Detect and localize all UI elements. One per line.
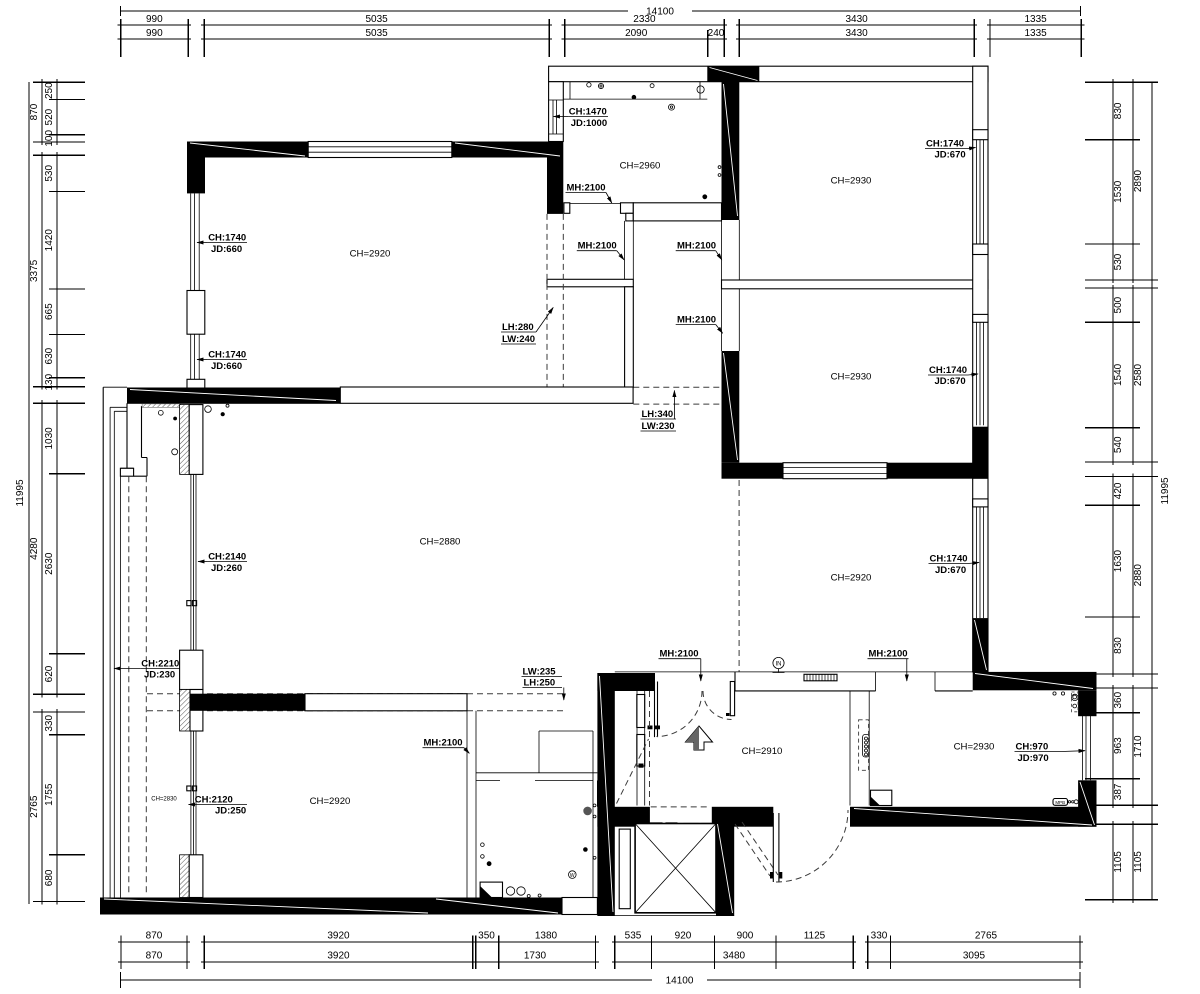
svg-text:5035: 5035 (365, 28, 388, 39)
svg-text:1105: 1105 (1133, 851, 1144, 873)
svg-text:360: 360 (1113, 691, 1124, 708)
svg-text:CH:2210: CH:2210 (141, 659, 179, 670)
svg-text:1540: 1540 (1113, 363, 1124, 386)
svg-text:5035: 5035 (365, 14, 388, 25)
svg-text:LW:230: LW:230 (642, 421, 675, 432)
svg-text:CH:1740: CH:1740 (208, 350, 246, 361)
svg-text:CH=2930: CH=2930 (831, 176, 872, 187)
svg-text:MH:2100: MH:2100 (677, 314, 716, 325)
svg-text:620: 620 (44, 665, 55, 682)
svg-text:MH:2100: MH:2100 (677, 241, 716, 252)
svg-text:LW:240: LW:240 (502, 334, 535, 345)
svg-text:870: 870 (146, 951, 163, 962)
svg-text:CH:1470: CH:1470 (569, 107, 607, 118)
svg-text:2765: 2765 (29, 795, 40, 818)
svg-text:CH:1740: CH:1740 (929, 365, 967, 376)
svg-text:MH:2100: MH:2100 (567, 183, 606, 194)
svg-text:2090: 2090 (625, 28, 648, 39)
svg-text:JD:1000: JD:1000 (571, 118, 607, 129)
svg-text:CH:1740: CH:1740 (926, 139, 964, 150)
svg-text:2765: 2765 (975, 931, 998, 942)
svg-text:W: W (570, 873, 575, 879)
svg-text:MH:2100: MH:2100 (424, 738, 463, 749)
svg-text:3430: 3430 (845, 14, 868, 25)
svg-text:1630: 1630 (1113, 550, 1124, 573)
svg-text:CH=2960: CH=2960 (620, 161, 661, 172)
svg-text:JD:670: JD:670 (935, 150, 966, 161)
svg-text:MH:2100: MH:2100 (660, 649, 699, 660)
svg-text:330: 330 (44, 715, 55, 732)
svg-text:MH:2100: MH:2100 (869, 649, 908, 660)
svg-text:14100: 14100 (666, 976, 694, 987)
svg-text:3430: 3430 (845, 28, 868, 39)
svg-text:LH:340: LH:340 (642, 409, 674, 420)
svg-text:1335: 1335 (1024, 28, 1047, 39)
svg-text:CH=2920: CH=2920 (350, 249, 391, 260)
svg-text:JD:670: JD:670 (935, 565, 966, 576)
svg-text:CH=2830: CH=2830 (151, 797, 177, 803)
svg-text:1710: 1710 (1133, 735, 1144, 758)
svg-text:CH=2920: CH=2920 (310, 796, 351, 807)
svg-text:1730: 1730 (524, 951, 547, 962)
svg-text:130: 130 (44, 373, 55, 390)
svg-text:520: 520 (44, 108, 55, 125)
svg-text:1335: 1335 (1024, 14, 1047, 25)
svg-text:2580: 2580 (1133, 363, 1144, 386)
svg-text:CH=2910: CH=2910 (742, 746, 783, 757)
svg-text:JD:670: JD:670 (935, 376, 966, 387)
svg-text:680: 680 (44, 869, 55, 886)
svg-text:240: 240 (708, 28, 725, 39)
svg-text:1125: 1125 (804, 931, 826, 942)
svg-text:500: 500 (1113, 296, 1124, 313)
svg-text:1420: 1420 (44, 229, 55, 252)
svg-text:665: 665 (44, 303, 55, 320)
svg-text:330: 330 (871, 931, 888, 942)
svg-text:530: 530 (44, 165, 55, 182)
svg-text:11995: 11995 (15, 479, 26, 507)
svg-text:963: 963 (1113, 737, 1124, 754)
svg-text:CH=2930: CH=2930 (831, 372, 872, 383)
svg-text:3920: 3920 (327, 951, 350, 962)
svg-text:530: 530 (1113, 253, 1124, 270)
svg-text:3375: 3375 (29, 259, 40, 282)
svg-text:1030: 1030 (44, 427, 55, 450)
svg-text:CH=2930: CH=2930 (954, 742, 995, 753)
svg-text:2880: 2880 (1133, 564, 1144, 587)
svg-text:JD:250: JD:250 (215, 806, 246, 817)
svg-text:540: 540 (1113, 436, 1124, 453)
svg-text:830: 830 (1113, 637, 1124, 654)
svg-text:350: 350 (478, 931, 495, 942)
svg-text:LH:280: LH:280 (502, 322, 534, 333)
svg-text:JD:970: JD:970 (1018, 753, 1049, 764)
svg-text:LH:250: LH:250 (524, 678, 556, 689)
svg-text:870: 870 (146, 931, 163, 942)
svg-text:JD:660: JD:660 (211, 244, 242, 255)
svg-text:MH:2100: MH:2100 (578, 241, 617, 252)
svg-text:CH=2920: CH=2920 (831, 573, 872, 584)
svg-text:990: 990 (146, 28, 163, 39)
svg-text:387: 387 (1113, 783, 1124, 800)
svg-text:CH:970: CH:970 (1016, 742, 1049, 753)
svg-text:11995: 11995 (1160, 477, 1171, 505)
svg-text:2890: 2890 (1133, 169, 1144, 192)
svg-text:2630: 2630 (44, 552, 55, 575)
svg-text:870: 870 (29, 103, 40, 120)
svg-text:1530: 1530 (1113, 180, 1124, 203)
svg-text:3920: 3920 (327, 931, 350, 942)
svg-text:2330: 2330 (633, 14, 656, 25)
svg-text:3095: 3095 (963, 951, 986, 962)
svg-text:250: 250 (44, 82, 55, 99)
svg-text:920: 920 (675, 931, 692, 942)
svg-text:CH=2880: CH=2880 (420, 537, 461, 548)
svg-text:990: 990 (146, 14, 163, 25)
svg-text:1755: 1755 (44, 783, 55, 806)
svg-text:CH:1740: CH:1740 (930, 554, 968, 565)
svg-text:1380: 1380 (535, 931, 558, 942)
svg-text:830: 830 (1113, 102, 1124, 119)
svg-text:3480: 3480 (723, 951, 746, 962)
svg-text:CH:2120: CH:2120 (195, 795, 233, 806)
svg-text:IN: IN (776, 662, 782, 668)
svg-text:MPB: MPB (1055, 800, 1065, 805)
svg-text:630: 630 (44, 347, 55, 364)
svg-text:1105: 1105 (1113, 851, 1124, 873)
svg-text:420: 420 (1113, 482, 1124, 499)
svg-text:4280: 4280 (29, 537, 40, 560)
svg-text:LW:235: LW:235 (523, 667, 557, 678)
svg-text:JD:260: JD:260 (211, 563, 242, 574)
svg-text:CH:2140: CH:2140 (208, 552, 246, 563)
svg-text:JD:660: JD:660 (211, 361, 242, 372)
svg-text:CH:1740: CH:1740 (208, 233, 246, 244)
svg-text:900: 900 (737, 931, 754, 942)
svg-text:JD:230: JD:230 (144, 670, 175, 681)
svg-text:535: 535 (625, 931, 642, 942)
svg-text:100: 100 (44, 130, 55, 147)
